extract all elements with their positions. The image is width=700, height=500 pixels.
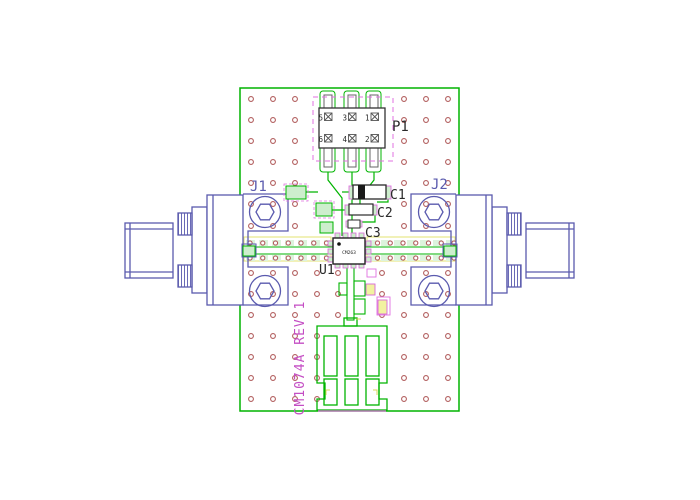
p1-pin4-label: 4 [342,135,347,144]
j1-barrel [125,223,173,278]
j1-knurl-top [178,213,192,235]
label-p1: P1 [392,119,409,135]
ladder-cap-2 [378,300,387,314]
p1-pin6-label: 6 [318,135,323,144]
header-p1: 5 3 1 6 4 2 [313,91,393,172]
label-u1: U1 [319,263,335,278]
capacitor-c3 [346,220,362,228]
ic-pin1-dot [337,242,341,246]
j2-pin-pad [444,246,456,256]
ladder-cap-1 [366,284,375,295]
label-c2: C2 [377,206,393,221]
capacitor-c1 [349,185,391,199]
silkscreen-board-id: CM1074A REV 1 [293,301,308,416]
j1-pin-pad [243,246,255,256]
label-c3: C3 [365,226,381,241]
j1-step [192,207,207,293]
j2-barrel [526,223,574,278]
p1-pin3-label: 3 [342,114,347,123]
p1-pin1-label: 1 [365,114,370,123]
p1-pin2-label: 2 [365,135,370,144]
label-j1: J1 [250,179,267,195]
label-j2: J2 [431,177,448,193]
pcb-layout-canvas: 5 3 1 6 4 2 [0,0,700,500]
j2-knurl-bottom [507,265,521,287]
j2-step [492,207,507,293]
j1-knurl-bottom [178,265,192,287]
ic-marking: CM263 [342,250,356,256]
j2-knurl-top [507,213,521,235]
pcb-drawing: 5 3 1 6 4 2 [0,0,700,500]
p1-pin5-label: 5 [318,114,323,123]
capacitor-c2 [345,204,377,215]
label-c1: C1 [390,188,406,203]
